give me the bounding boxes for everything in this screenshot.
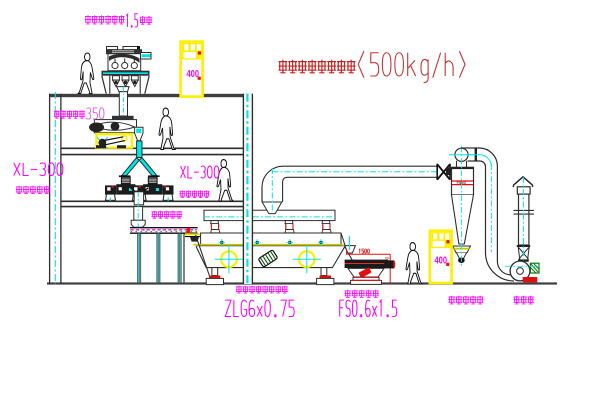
svg-text:400: 400	[435, 256, 448, 267]
svg-text:400: 400	[187, 69, 200, 80]
